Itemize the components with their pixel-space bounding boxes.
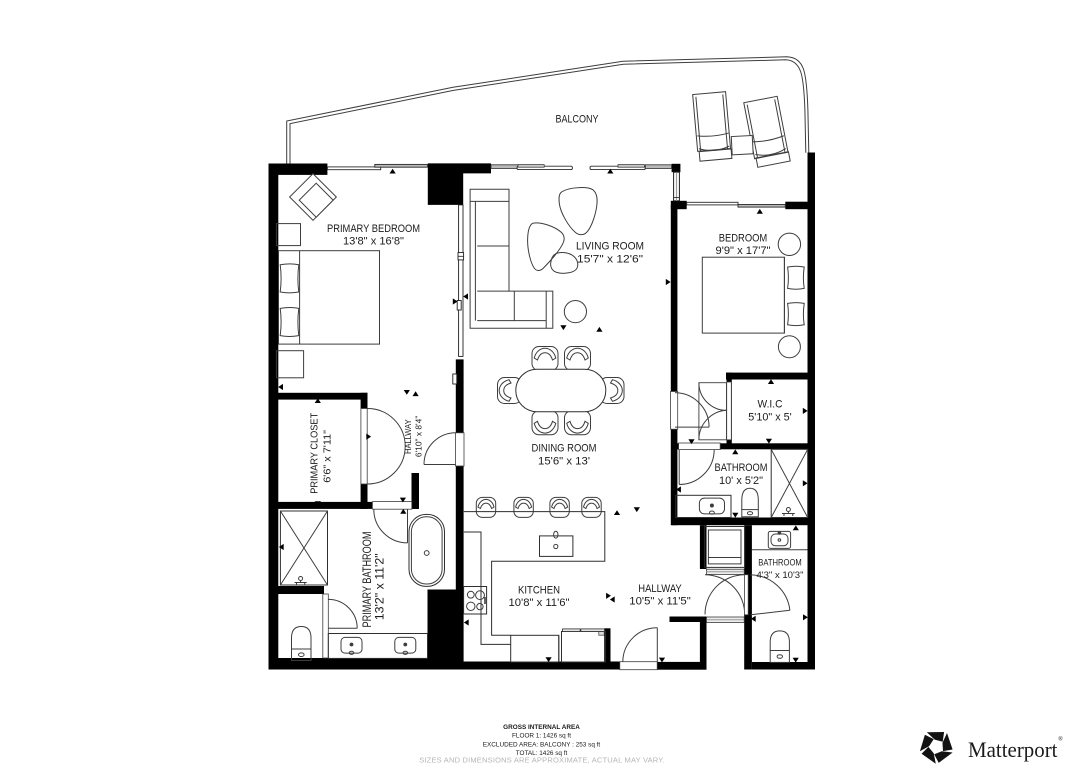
svg-text:4'3" x 10'3": 4'3" x 10'3" [757, 570, 804, 580]
svg-text:GROSS INTERNAL AREA: GROSS INTERNAL AREA [503, 724, 580, 731]
svg-text:10'5" x 11'5": 10'5" x 11'5" [629, 595, 691, 607]
svg-text:15'6" x 13': 15'6" x 13' [538, 456, 590, 468]
svg-text:EXCLUDED AREA: BALCONY : 253 s: EXCLUDED AREA: BALCONY : 253 sq ft [483, 742, 601, 749]
svg-text:6'6" x 7'11": 6'6" x 7'11" [323, 430, 334, 483]
svg-text:15'7" x 12'6": 15'7" x 12'6" [577, 253, 643, 265]
svg-text:10' x 5'2": 10' x 5'2" [719, 475, 763, 487]
svg-text:BATHROOM: BATHROOM [758, 558, 802, 568]
svg-text:LIVING ROOM: LIVING ROOM [576, 240, 644, 252]
svg-text:10'8" x 11'6": 10'8" x 11'6" [509, 597, 570, 609]
svg-text:HALLWAY: HALLWAY [638, 583, 682, 595]
svg-text:Matterport: Matterport [968, 737, 1058, 762]
svg-text:HALLWAY: HALLWAY [403, 419, 413, 454]
svg-text:W.I.C: W.I.C [758, 399, 783, 411]
svg-text:5'10" x 5': 5'10" x 5' [748, 412, 792, 424]
svg-text:FLOOR 1: 1426 sq ft: FLOOR 1: 1426 sq ft [512, 733, 571, 740]
svg-text:®: ® [1058, 736, 1063, 743]
svg-text:PRIMARY BEDROOM: PRIMARY BEDROOM [327, 223, 420, 235]
svg-text:13'8" x 16'8": 13'8" x 16'8" [343, 235, 404, 247]
svg-text:BEDROOM: BEDROOM [719, 233, 768, 245]
svg-text:6'10" x 8'4": 6'10" x 8'4" [414, 416, 424, 457]
svg-text:PRIMARY CLOSET: PRIMARY CLOSET [310, 412, 321, 494]
svg-text:BALCONY: BALCONY [556, 113, 599, 125]
svg-text:9'9" x 17'7": 9'9" x 17'7" [716, 245, 771, 257]
svg-text:KITCHEN: KITCHEN [518, 585, 560, 597]
svg-text:BATHROOM: BATHROOM [715, 462, 768, 474]
svg-text:SIZES AND DIMENSIONS ARE APPRO: SIZES AND DIMENSIONS ARE APPROXIMATE, AC… [419, 756, 665, 764]
svg-text:DINING ROOM: DINING ROOM [532, 443, 597, 455]
svg-text:13'2" x 11'2": 13'2" x 11'2" [372, 553, 386, 620]
